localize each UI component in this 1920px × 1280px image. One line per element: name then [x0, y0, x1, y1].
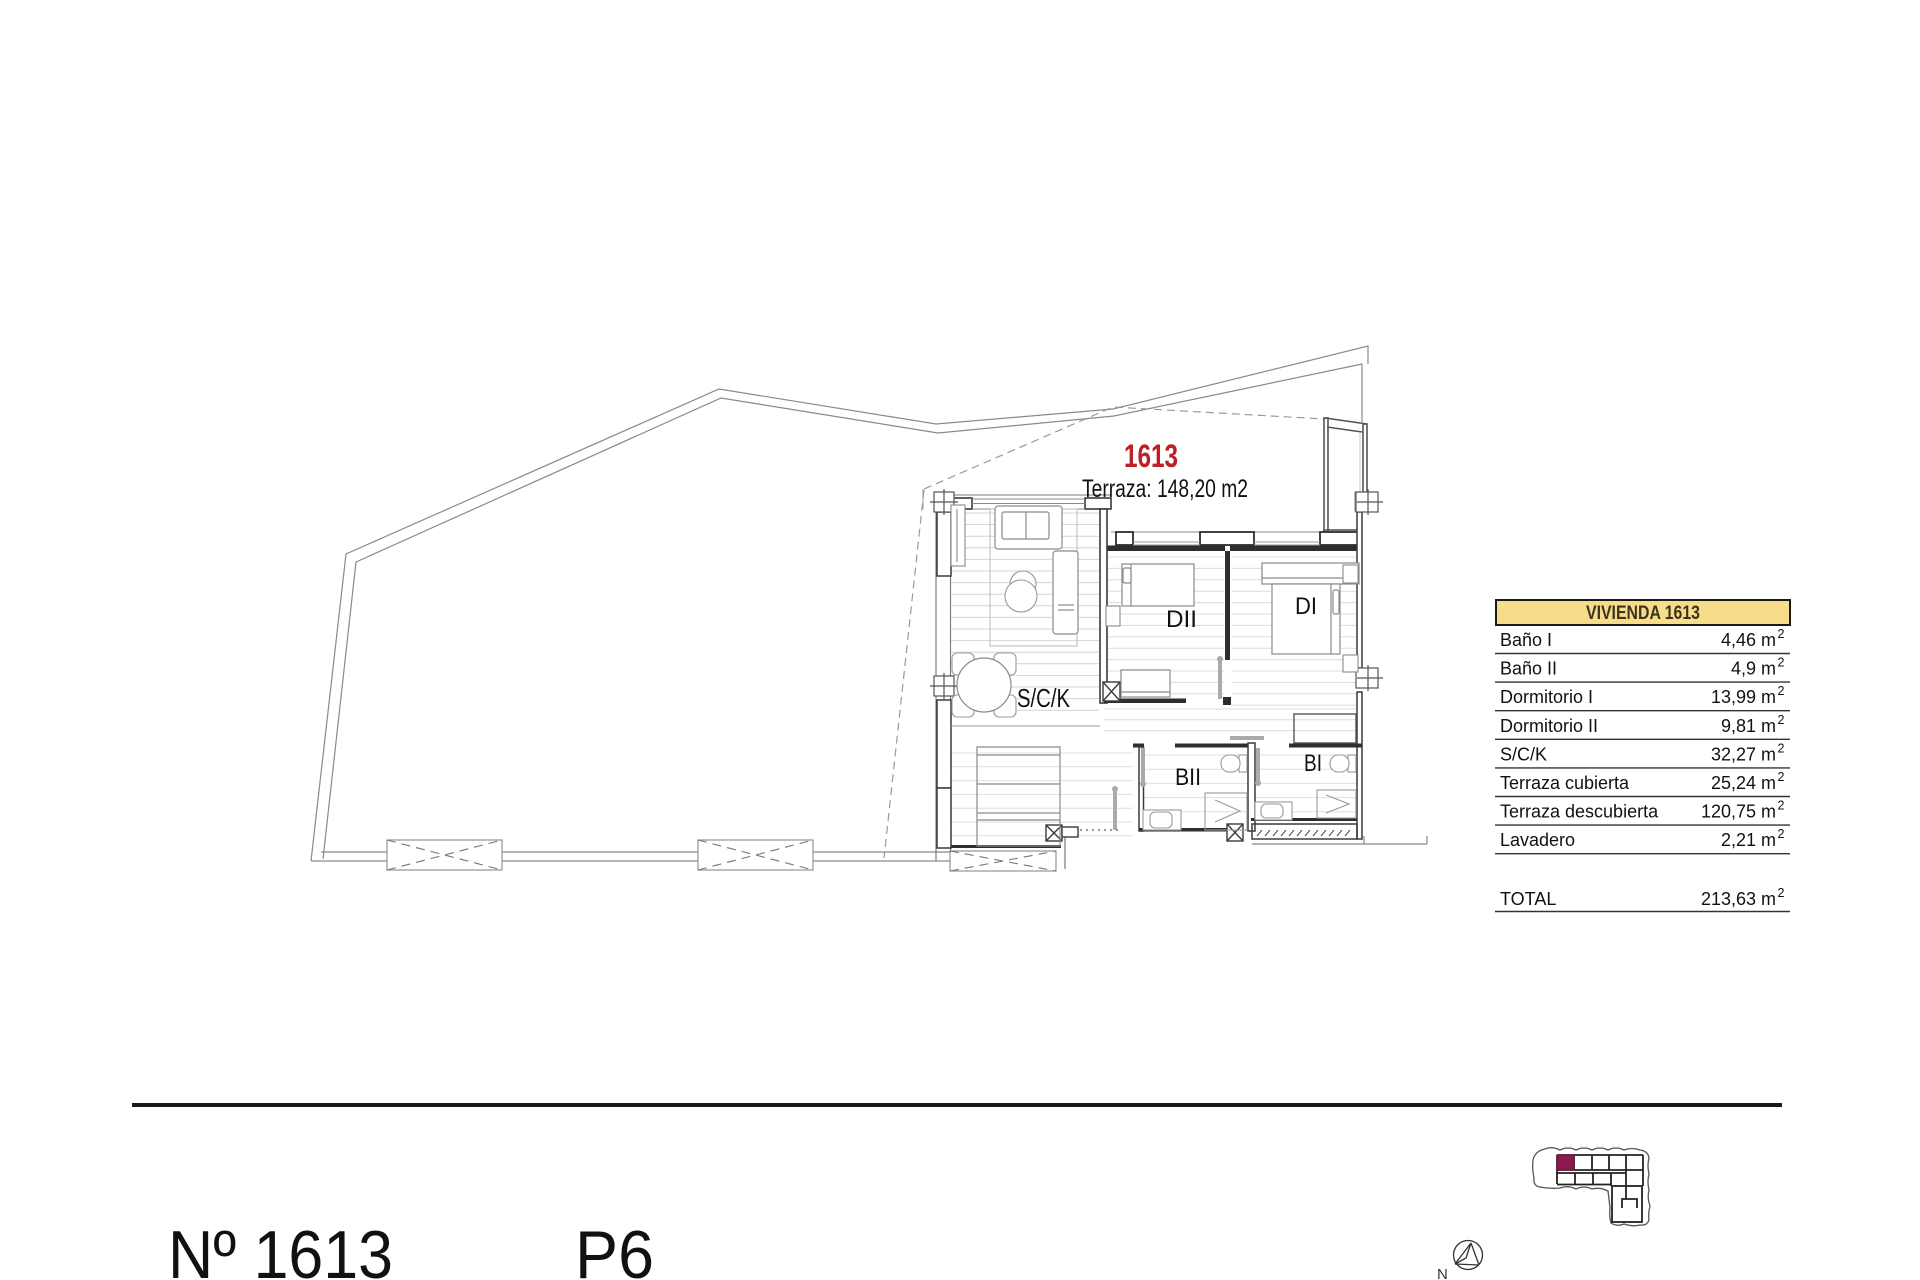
svg-text:4,9 m: 4,9 m [1731, 659, 1776, 679]
svg-text:S/C/K: S/C/K [1500, 744, 1547, 764]
svg-text:9,81 m: 9,81 m [1721, 716, 1776, 736]
svg-text:2,21 m: 2,21 m [1721, 830, 1776, 850]
svg-text:1613: 1613 [1124, 438, 1178, 474]
svg-text:2: 2 [1778, 713, 1785, 727]
svg-text:DII: DII [1166, 606, 1197, 633]
svg-text:32,27 m: 32,27 m [1711, 744, 1776, 764]
svg-text:Baño I: Baño I [1500, 630, 1552, 650]
svg-text:N: N [1437, 1266, 1448, 1280]
svg-text:2: 2 [1778, 684, 1785, 698]
svg-text:4,46 m: 4,46 m [1721, 630, 1776, 650]
svg-text:S/C/K: S/C/K [1017, 683, 1071, 713]
svg-text:Baño II: Baño II [1500, 659, 1557, 679]
svg-text:TOTAL: TOTAL [1500, 889, 1556, 909]
svg-text:P6: P6 [575, 1217, 654, 1280]
svg-text:25,24 m: 25,24 m [1711, 773, 1776, 793]
svg-text:VIVIENDA 1613: VIVIENDA 1613 [1586, 603, 1700, 624]
svg-text:2: 2 [1778, 827, 1785, 841]
svg-text:Lavadero: Lavadero [1500, 830, 1575, 850]
svg-text:Dormitorio I: Dormitorio I [1500, 687, 1593, 707]
svg-text:2: 2 [1778, 799, 1785, 813]
svg-text:2: 2 [1778, 627, 1785, 641]
svg-text:Nº 1613: Nº 1613 [168, 1217, 393, 1280]
svg-text:2: 2 [1778, 770, 1785, 784]
svg-text:Dormitorio II: Dormitorio II [1500, 716, 1598, 736]
svg-text:13,99 m: 13,99 m [1711, 687, 1776, 707]
svg-text:213,63 m: 213,63 m [1701, 889, 1776, 909]
svg-text:2: 2 [1778, 886, 1785, 900]
svg-text:120,75 m: 120,75 m [1701, 802, 1776, 822]
svg-text:BII: BII [1175, 764, 1201, 791]
svg-text:Terraza descubierta: Terraza descubierta [1500, 802, 1659, 822]
svg-text:Terraza: 148,20 m2: Terraza: 148,20 m2 [1082, 475, 1248, 503]
svg-text:Terraza cubierta: Terraza cubierta [1500, 773, 1630, 793]
svg-text:2: 2 [1778, 741, 1785, 755]
svg-text:BI: BI [1304, 750, 1322, 777]
svg-text:DI: DI [1295, 593, 1317, 620]
svg-text:2: 2 [1778, 656, 1785, 670]
